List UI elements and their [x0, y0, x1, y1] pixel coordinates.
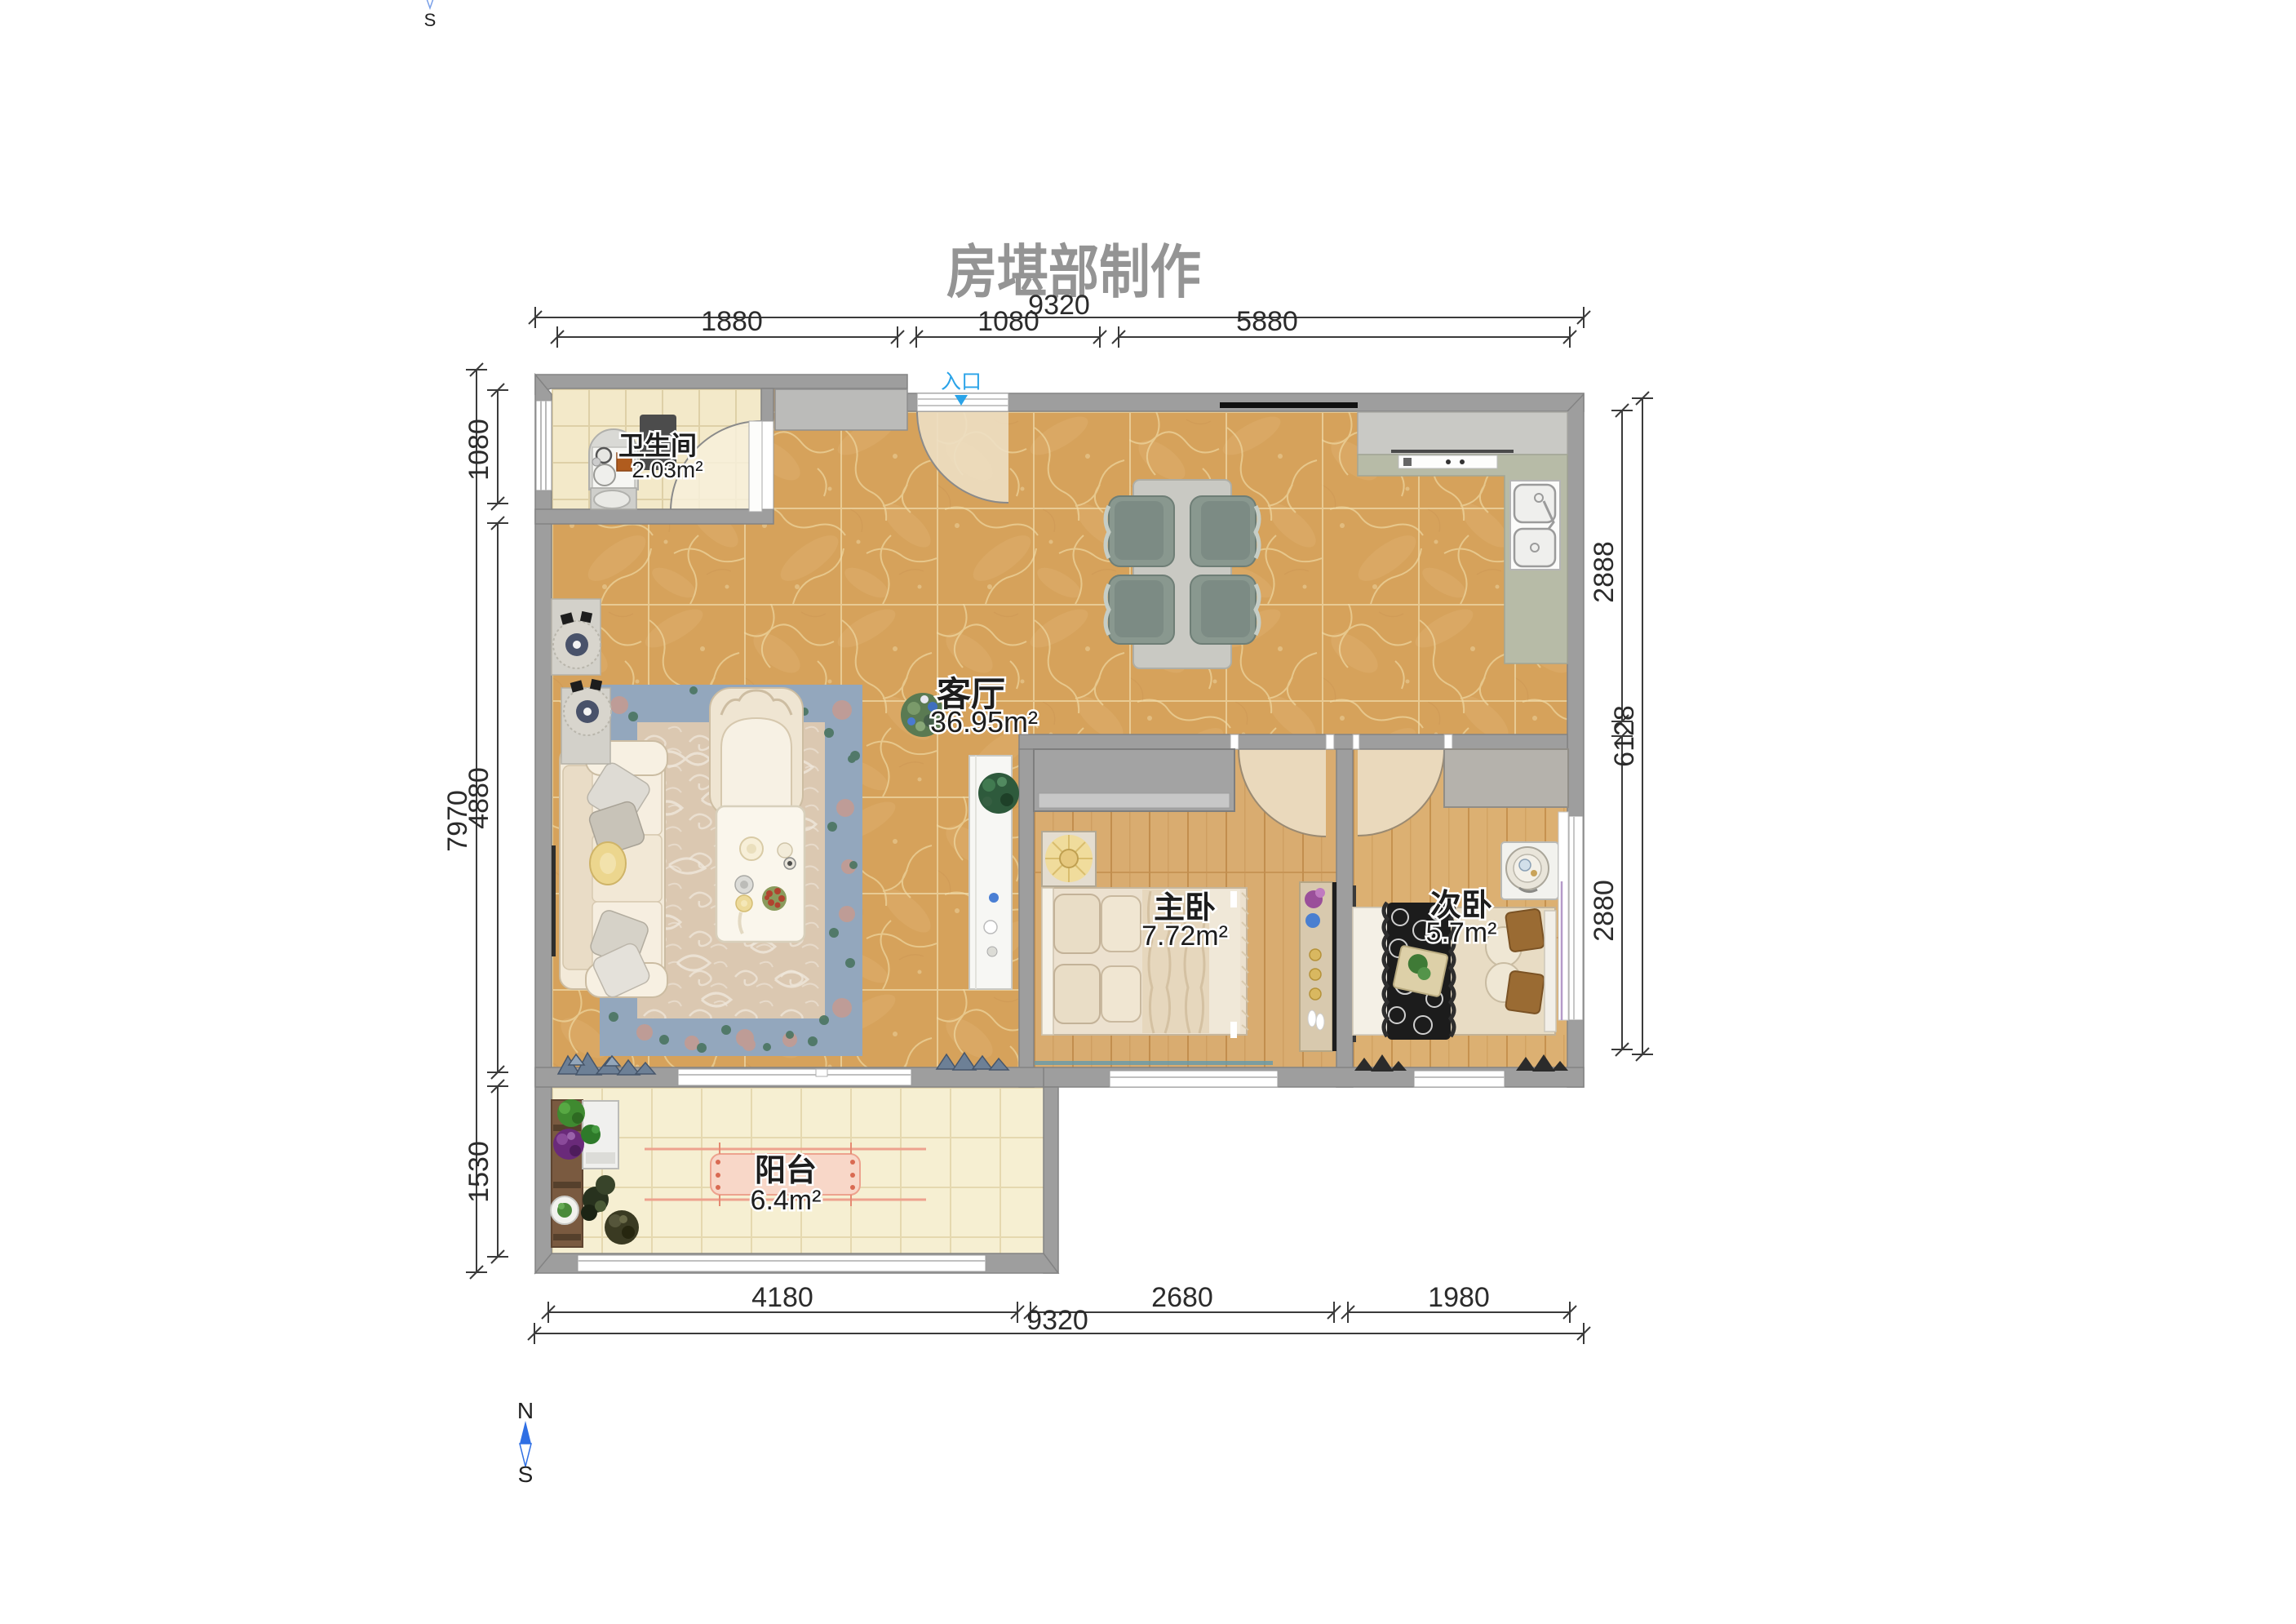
svg-text:2680: 2680 [1151, 1282, 1213, 1313]
svg-text:4880: 4880 [463, 767, 494, 829]
svg-text:S: S [424, 10, 437, 30]
svg-text:2.03m²: 2.03m² [632, 457, 703, 482]
svg-text:5.7m²: 5.7m² [1426, 917, 1497, 948]
svg-text:6.4m²: 6.4m² [751, 1185, 822, 1216]
svg-text:1530: 1530 [463, 1141, 494, 1203]
svg-text:阳台: 阳台 [755, 1154, 817, 1188]
svg-text:1980: 1980 [1428, 1282, 1490, 1313]
svg-text:1080: 1080 [463, 419, 494, 481]
svg-text:S: S [518, 1462, 534, 1487]
svg-text:1880: 1880 [701, 306, 763, 337]
svg-text:N: N [517, 1398, 534, 1423]
svg-text:2888: 2888 [1589, 541, 1620, 603]
svg-text:9320: 9320 [1026, 1305, 1088, 1336]
svg-text:1080: 1080 [977, 306, 1039, 337]
svg-text:36.95m²: 36.95m² [930, 705, 1038, 739]
svg-text:卫生间: 卫生间 [618, 431, 697, 460]
svg-text:2880: 2880 [1589, 880, 1620, 942]
svg-text:7.72m²: 7.72m² [1141, 921, 1228, 952]
svg-text:4180: 4180 [751, 1282, 813, 1313]
svg-text:6128: 6128 [1609, 705, 1640, 767]
svg-text:入口: 入口 [941, 371, 982, 393]
svg-text:5880: 5880 [1236, 306, 1298, 337]
